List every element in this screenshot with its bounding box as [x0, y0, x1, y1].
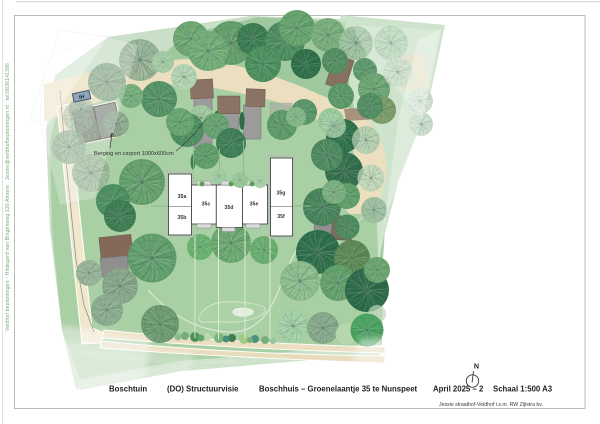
svg-text:Jessie straathof-Veldhof i.s.m: Jessie straathof-Veldhof i.s.m. RW Zijls…: [439, 402, 543, 408]
svg-text:April 2025 – 2: April 2025 – 2: [433, 385, 484, 394]
svg-text:35d: 35d: [225, 205, 234, 211]
svg-text:35a: 35a: [178, 194, 187, 200]
svg-text:Schaal 1:500 A3: Schaal 1:500 A3: [493, 385, 553, 394]
svg-text:35g: 35g: [277, 191, 286, 197]
svg-text:Boschtuin: Boschtuin: [109, 385, 147, 394]
svg-text:35c: 35c: [202, 202, 211, 208]
svg-text:35f: 35f: [277, 214, 285, 220]
svg-text:(DO) Structuurvisie: (DO) Structuurvisie: [167, 385, 239, 394]
svg-text:N: N: [474, 362, 479, 371]
svg-text:Boschhuis – Groenelaantje 35 t: Boschhuis – Groenelaantje 35 te Nunspeet: [259, 385, 418, 394]
svg-text:35b: 35b: [178, 215, 187, 221]
svg-text:35e: 35e: [250, 202, 259, 208]
svg-text:Veldhof beplantingen - Hildega: Veldhof beplantingen - Hildegard van Bin…: [5, 63, 11, 331]
svg-text:Berging en carport 1000x600cm: Berging en carport 1000x600cm: [94, 151, 174, 157]
